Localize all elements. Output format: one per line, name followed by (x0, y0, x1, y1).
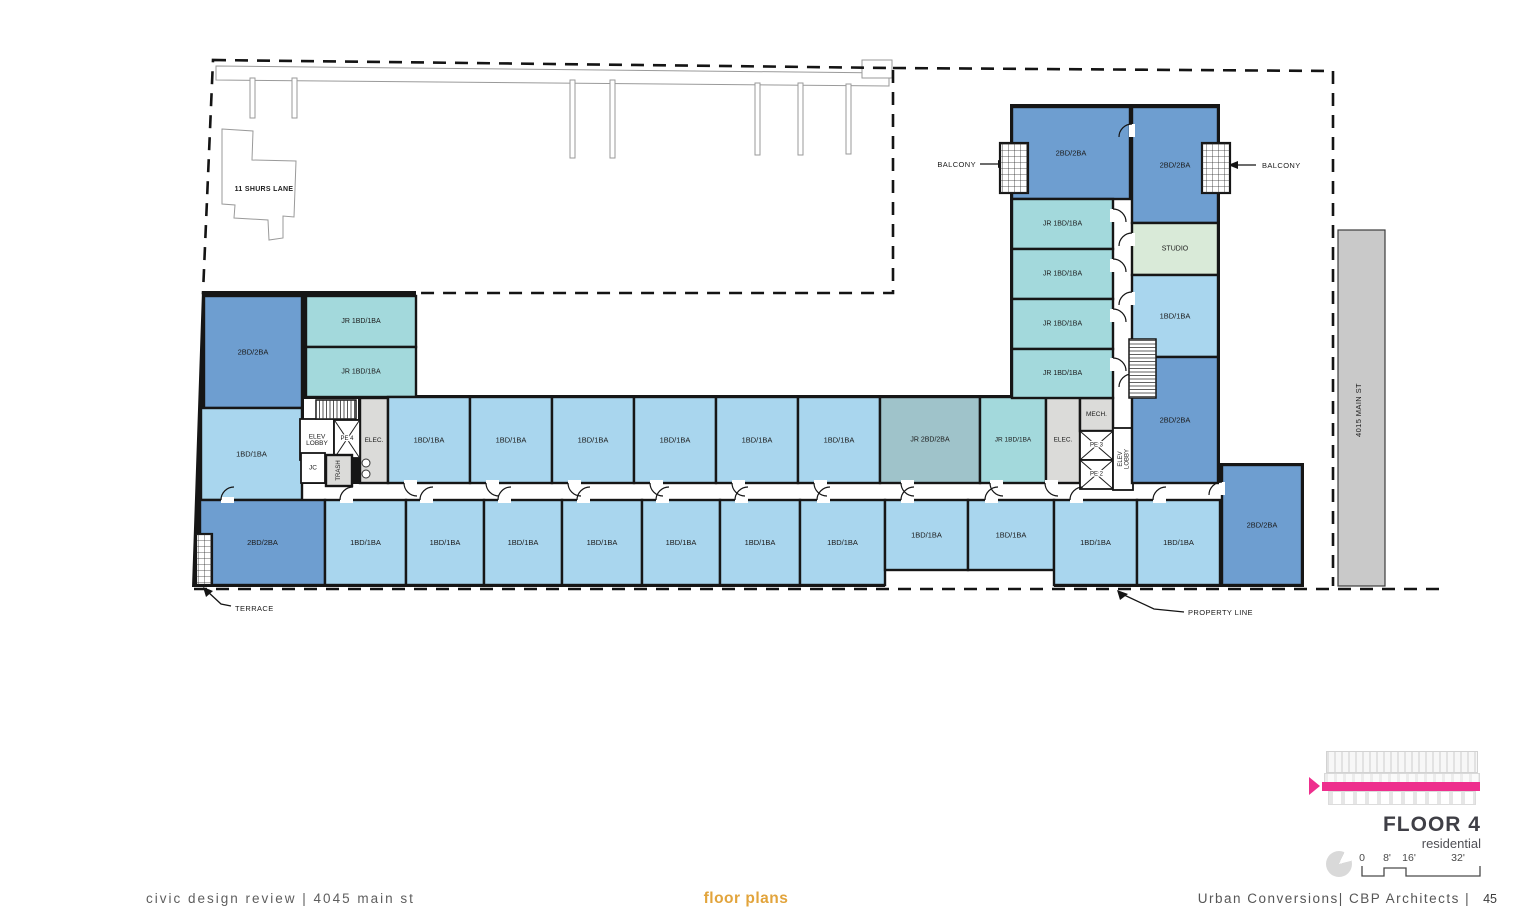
stair-treads (316, 400, 356, 419)
property-line-yard (203, 60, 893, 293)
room-elev-lobby: ELEVLOBBY (1113, 428, 1133, 490)
floor-highlight-band (1322, 782, 1480, 791)
sheet-subtitle: residential (1180, 836, 1481, 851)
room-label: 1BD/1BA (578, 436, 609, 445)
arrowhead (1117, 590, 1128, 600)
room-1bd-1ba: 1BD/1BA (720, 487, 800, 585)
room-pe-4: PE 4 (334, 420, 360, 458)
door-gap (656, 497, 669, 503)
neighbor-building-outline (222, 129, 296, 240)
room-label: 1BD/1BA (1080, 538, 1111, 547)
room-1bd-1ba: 1BD/1BA (634, 397, 716, 496)
room-label: 1BD/1BA (350, 538, 381, 547)
room-jr-2bd-2ba: JR 2BD/2BA (880, 397, 980, 496)
door-gap (1129, 233, 1135, 246)
door-gap (340, 497, 353, 503)
door-gap (577, 497, 590, 503)
door-gap (420, 497, 433, 503)
room-1bd-1ba: 1BD/1BA (552, 397, 634, 496)
door-gap (901, 480, 914, 486)
room-label: 2BD/2BA (1160, 416, 1191, 425)
room-2bd-2ba: 2BD/2BA (1209, 465, 1302, 585)
room-studio: STUDIO (1119, 223, 1218, 275)
room-label: JC (309, 465, 317, 472)
room-label: 1BD/1BA (430, 538, 461, 547)
room-jr-1bd-1ba: JR 1BD/1BA (306, 296, 416, 347)
door-gap (901, 497, 914, 503)
elevation-ground-floor (1328, 791, 1476, 805)
room-2bd-2ba: 2BD/2BA (1012, 107, 1130, 199)
door-gap (404, 480, 417, 486)
room-jr-1bd-1ba: JR 1BD/1BA (1012, 199, 1126, 249)
room-elec: ELEC. (1045, 397, 1080, 496)
room-label: PE 2 (1090, 472, 1104, 478)
door-gap (1153, 497, 1166, 503)
room-2bd-2ba: 2BD/2BA (200, 487, 325, 585)
room-mech: MECH. (1080, 398, 1113, 431)
room-label: 1BD/1BA (660, 436, 691, 445)
site-post (755, 83, 760, 155)
leader-terrace (207, 591, 231, 606)
room-jr-1bd-1ba: JR 1BD/1BA (1012, 349, 1126, 398)
room-1bd-1ba: 1BD/1BA (968, 487, 1054, 570)
room-label: 2BD/2BA (1056, 149, 1087, 158)
site-post (250, 78, 255, 118)
room-label: JR 1BD/1BA (995, 437, 1032, 444)
room-jr-1bd-1ba: JR 1BD/1BA (306, 347, 416, 397)
room-1bd-1ba: 1BD/1BA (1137, 487, 1220, 585)
room-label: 1BD/1BA (996, 531, 1027, 540)
room-trash: TRASH (326, 455, 352, 486)
door-gap (486, 480, 499, 486)
page-number: 45 (1483, 892, 1497, 906)
scale-tick-0: 0 (1359, 852, 1365, 864)
door-gap (985, 497, 998, 503)
room-1bd-1ba: 1BD/1BA (562, 487, 642, 585)
room-label: 1BD/1BA (911, 531, 942, 540)
room-label: 1BD/1BA (1163, 538, 1194, 547)
room-label: 1BD/1BA (742, 436, 773, 445)
room-1bd-1ba: 1BD/1BA (470, 397, 552, 496)
room-label: TRASH (336, 460, 342, 480)
main-st-building-label: 4015 MAIN ST (1354, 383, 1363, 437)
door-gap (1110, 358, 1116, 371)
door-gap (650, 480, 663, 486)
door-gap (1129, 124, 1135, 137)
room-1bd-1ba: 1BD/1BA (716, 397, 798, 496)
room-1bd-1ba: 1BD/1BA (885, 487, 968, 570)
site-post (846, 84, 851, 154)
door-gap (498, 497, 511, 503)
door-gap (1110, 259, 1116, 272)
site-structure (216, 66, 889, 86)
door-gap (814, 480, 827, 486)
door-gap (735, 497, 748, 503)
door-gap (1129, 292, 1135, 305)
stair-treads (1129, 339, 1156, 398)
room-label: 1BD/1BA (414, 436, 445, 445)
scale-tick-32: 32' (1451, 852, 1465, 864)
leader-property-line (1122, 594, 1184, 612)
room-1bd-1ba: 1BD/1BA (642, 487, 720, 585)
room-1bd-1ba: 1BD/1BA (798, 397, 880, 496)
sheet-floor-plan: 11 SHURS LANE 4015 MAIN ST BALCONY BALCO… (0, 0, 1522, 916)
footer-firm-text: Urban Conversions| CBP Architects | (1198, 891, 1470, 906)
room-1bd-1ba: 1BD/1BA (406, 487, 484, 585)
floor-plan-drawing: 11 SHURS LANE 4015 MAIN ST BALCONY BALCO… (0, 0, 1522, 916)
door-gap (221, 497, 234, 503)
neighbor-building-label: 11 SHURS LANE (235, 186, 294, 193)
room-jc: JC (301, 453, 325, 483)
hatch-pattern (196, 534, 212, 585)
elevation-thumbnail (1322, 733, 1480, 821)
room-label: 1BD/1BA (508, 538, 539, 547)
door-gap (817, 497, 830, 503)
property-line-label: PROPERTY LINE (1188, 608, 1253, 617)
sheet-title: FLOOR 4 (1180, 813, 1481, 837)
site-post (610, 80, 615, 158)
elevation-upper-floors (1326, 751, 1478, 773)
door-gap (1110, 209, 1116, 222)
site-post (798, 83, 803, 155)
room-1bd-1ba: 1BD/1BA (201, 408, 302, 500)
room-1bd-1ba: 1BD/1BA (800, 487, 885, 585)
footer-section: floor plans (646, 890, 846, 908)
door-gap (568, 480, 581, 486)
room-1bd-1ba: 1BD/1BA (325, 487, 406, 585)
room-label: 1BD/1BA (587, 538, 618, 547)
room-label: ELEC. (365, 437, 384, 444)
room-label: 2BD/2BA (1160, 161, 1191, 170)
room-label: 2BD/2BA (1247, 521, 1278, 530)
room-label: PE 4 (340, 436, 354, 442)
room-label: JR 1BD/1BA (1043, 271, 1083, 278)
room-label: 2BD/2BA (247, 538, 278, 547)
room-jr-1bd-1ba: JR 1BD/1BA (980, 397, 1046, 496)
north-arrow-icon (1326, 851, 1352, 877)
footer-project: civic design review | 4045 main st (146, 891, 415, 906)
room-label: 1BD/1BA (496, 436, 527, 445)
site-post (292, 78, 297, 118)
hatch-pattern (1000, 143, 1028, 193)
room-1bd-1ba: 1BD/1BA (388, 397, 470, 496)
floor-marker-icon (1309, 777, 1320, 795)
hatch-pattern (1202, 143, 1230, 193)
room-jr-1bd-1ba: JR 1BD/1BA (1012, 299, 1126, 349)
room-label: ELEVLOBBY (1118, 449, 1130, 469)
room-label: 1BD/1BA (1160, 312, 1191, 321)
room-label: JR 1BD/1BA (341, 318, 381, 325)
room-label: JR 1BD/1BA (1043, 370, 1083, 377)
room-1bd-1ba: 1BD/1BA (484, 487, 562, 585)
scale-tick-16: 16' (1402, 852, 1416, 864)
room-label: MECH. (1086, 411, 1107, 418)
door-gap (990, 480, 1003, 486)
room-label: JR 1BD/1BA (341, 369, 381, 376)
door-gap (1045, 480, 1058, 486)
balcony-label-right: BALCONY (1262, 161, 1301, 170)
room-2bd-2ba: 2BD/2BA (204, 296, 302, 408)
room-jr-1bd-1ba: JR 1BD/1BA (1012, 249, 1126, 299)
scale-bar (1362, 866, 1480, 876)
door-gap (1070, 497, 1083, 503)
room-pe-3: PE 3 (1080, 431, 1113, 460)
door-gap (1110, 309, 1116, 322)
room-label: PE 3 (1090, 443, 1104, 449)
laundry-equipment (362, 459, 370, 467)
door-gap (732, 480, 745, 486)
room-label: JR 1BD/1BA (1043, 221, 1083, 228)
room-label: ELEVLOBBY (306, 433, 328, 447)
room-label: 1BD/1BA (827, 538, 858, 547)
room-1bd-1ba: 1BD/1BA (1054, 487, 1137, 585)
room-label: 1BD/1BA (824, 436, 855, 445)
laundry-equipment (362, 470, 370, 478)
balcony-label-left: BALCONY (937, 160, 976, 169)
room-label: JR 2BD/2BA (910, 437, 950, 444)
door-gap (1219, 482, 1225, 495)
room-pe-2: PE 2 (1080, 460, 1113, 489)
room-label: 2BD/2BA (238, 348, 269, 357)
room-label: STUDIO (1162, 246, 1189, 253)
room-label: 1BD/1BA (745, 538, 776, 547)
room-label: 1BD/1BA (666, 538, 697, 547)
footer-firm: Urban Conversions| CBP Architects | 45 (1198, 891, 1497, 906)
building-rooms: 2BD/2BA1BD/1BAJR 1BD/1BAJR 1BD/1BAELEC.E… (192, 104, 1304, 587)
terrace-label: TERRACE (235, 604, 274, 613)
room-label: 1BD/1BA (236, 450, 267, 459)
scale-tick-8: 8' (1383, 852, 1391, 864)
room-label: ELEC. (1054, 437, 1073, 444)
room-label: JR 1BD/1BA (1043, 321, 1083, 328)
site-post (570, 80, 575, 158)
